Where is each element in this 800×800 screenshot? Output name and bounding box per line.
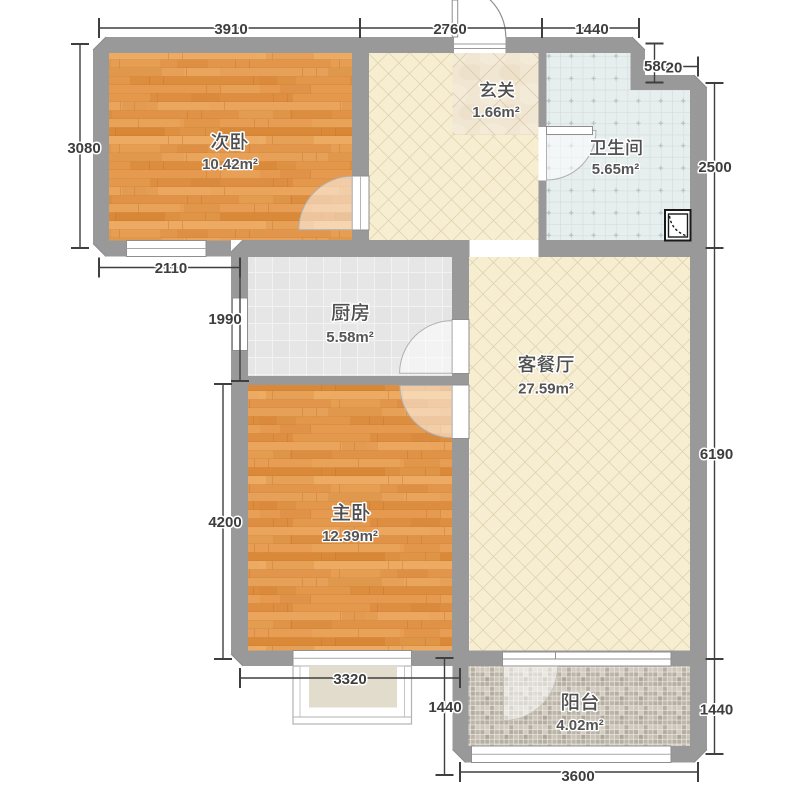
svg-text:3910: 3910	[214, 21, 247, 38]
svg-text:1990: 1990	[208, 311, 241, 328]
svg-text:1440: 1440	[428, 699, 461, 716]
svg-text:2760: 2760	[433, 21, 466, 38]
svg-text:4.02m²: 4.02m²	[556, 717, 604, 734]
svg-text:1.66m²: 1.66m²	[472, 104, 520, 121]
svg-text:5.65m²: 5.65m²	[592, 161, 640, 178]
svg-text:10.42m²: 10.42m²	[202, 156, 258, 173]
svg-text:2110: 2110	[155, 260, 188, 277]
svg-text:27.59m²: 27.59m²	[518, 381, 574, 398]
svg-text:1440: 1440	[575, 21, 608, 38]
svg-text:12.39m²: 12.39m²	[322, 528, 378, 545]
svg-text:3080: 3080	[67, 140, 100, 157]
svg-text:20: 20	[666, 60, 683, 77]
svg-text:4200: 4200	[208, 514, 241, 531]
svg-text:2500: 2500	[698, 159, 731, 176]
svg-text:3320: 3320	[333, 671, 366, 688]
svg-text:3600: 3600	[561, 768, 594, 785]
svg-text:5.58m²: 5.58m²	[326, 329, 374, 346]
svg-text:6190: 6190	[700, 446, 733, 463]
svg-text:1440: 1440	[700, 702, 733, 719]
